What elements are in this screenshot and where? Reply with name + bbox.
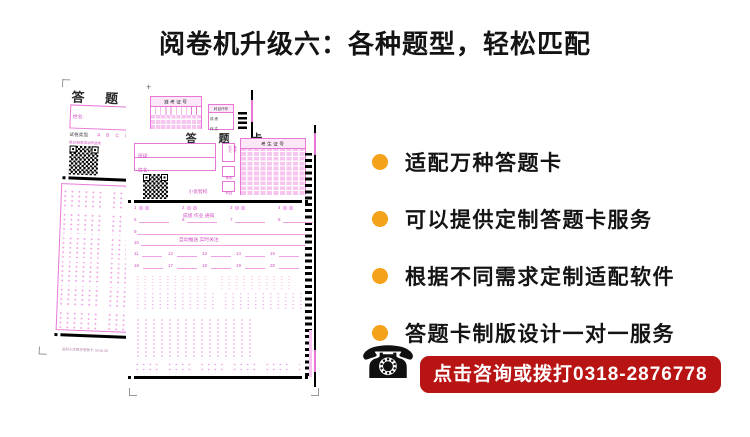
answer-bubble — [145, 206, 149, 210]
answer-blank — [137, 229, 306, 235]
question-number: 3 — [230, 206, 233, 211]
feature-label: 可以提供定制答题卡服务 — [405, 204, 653, 234]
question-number: 6 — [182, 218, 185, 223]
answer-blank — [279, 263, 299, 269]
answer-blank — [245, 263, 265, 269]
back-name-field: 姓名: — [69, 104, 132, 130]
bubble-block-51-60 — [134, 362, 300, 374]
crop-mark-icon — [39, 346, 47, 354]
question-number: 11 — [134, 252, 139, 257]
front-qr-caption: 小优智校 成绩 作业 通知 自动推送 实时关注 — [171, 177, 226, 249]
answer-bubble — [289, 206, 293, 210]
feature-label: 答题卡制版设计一对一服务 — [405, 318, 675, 348]
question-number: 9 — [134, 230, 137, 235]
question-number: 20 — [270, 264, 275, 269]
feature-item: 根据不同需求定制适配软件 — [372, 261, 675, 291]
class-label: 班级: — [138, 152, 149, 159]
bullet-icon — [372, 268, 388, 284]
bubble-block-36-40 — [222, 292, 304, 310]
answer-blank — [141, 240, 306, 246]
crop-mark-icon — [129, 388, 137, 396]
separator-bar — [134, 376, 302, 379]
question-number: 5 — [134, 218, 137, 223]
page-title: 阅卷机升级六：各种题型，轻松匹配 — [0, 24, 750, 61]
answer-blank — [235, 217, 265, 223]
answer-blank — [283, 217, 313, 223]
candidate-number-cells — [241, 149, 305, 195]
crop-mark-icon — [311, 388, 319, 396]
name-label: 姓名: — [138, 166, 149, 173]
answer-blank — [211, 263, 231, 269]
bubble-block-26-30 — [218, 275, 296, 290]
barcode-box: 条码 — [222, 166, 235, 177]
answer-blank — [211, 251, 231, 257]
answer-blank — [177, 251, 197, 257]
question-row-1-4: 1 2 3 4 — [134, 205, 326, 211]
promo-banner: 阅卷机升级六：各种题型，轻松匹配 答 题 卡 姓名: 试卷类型 A B C D … — [0, 0, 750, 437]
question-number: 13 — [202, 252, 207, 257]
registration-mark-icon: + — [146, 82, 151, 92]
question-row-11-15: 11 12 13 14 15 — [134, 251, 304, 257]
question-number: 10 — [134, 241, 139, 246]
bubble-block-31-35 — [134, 292, 214, 310]
student-info-box: 班级: 姓名: — [134, 143, 216, 171]
question-number: 12 — [168, 252, 173, 257]
back-name-label: 姓名: — [73, 112, 84, 120]
answer-blank — [187, 217, 217, 223]
candidate-number-grid: 考 生 证 号 — [240, 138, 306, 195]
question-number: 7 — [230, 218, 233, 223]
answer-blank — [177, 263, 197, 269]
subject-code-box: 科目代号 成 绩 作 文 — [208, 104, 234, 130]
question-row-16-20: 16 17 18 19 20 — [134, 263, 304, 269]
bullet-icon — [372, 211, 388, 227]
bubble-block-41-50 — [134, 318, 254, 358]
qr-caption-line1: 小优智校 — [189, 189, 208, 196]
question-row-9: 9 — [134, 229, 306, 235]
candidate-number-header: 考 生 证 号 — [261, 140, 284, 147]
separator-bar — [134, 200, 302, 203]
question-number: 19 — [236, 264, 241, 269]
edge-line — [314, 125, 316, 387]
subject-row-1: 成 绩 — [210, 116, 218, 121]
feature-item: 适配万种答题卡 — [372, 147, 675, 177]
pink-edge-bar — [309, 330, 312, 377]
answer-bubble — [283, 206, 287, 210]
feature-list: 适配万种答题卡 可以提供定制答题卡服务 根据不同需求定制适配软件 答题卡制版设计… — [372, 147, 675, 348]
question-row-5-8: 5 6 7 8 — [134, 217, 326, 223]
question-number: 15 — [270, 252, 275, 257]
answer-sheet-front: + 准 考 证 号 科目代号 成 绩 作 文 答 题 卡 班级: 姓名: 缺考标… — [126, 80, 322, 402]
feature-item: 答题卡制版设计一对一服务 — [372, 318, 675, 348]
contact-cta-button[interactable]: 点击咨询或拨打0318-2876778 — [420, 356, 721, 393]
feature-item: 可以提供定制答题卡服务 — [372, 204, 675, 234]
answer-blank — [139, 217, 169, 223]
question-number: 1 — [134, 206, 137, 211]
telephone-icon[interactable]: ☎ — [360, 340, 416, 385]
answer-bubble — [193, 206, 197, 210]
exam-number-grid: 准 考 证 号 — [150, 96, 202, 129]
answer-blank — [279, 251, 299, 257]
answer-blank — [143, 263, 163, 269]
answer-bubble — [235, 206, 239, 210]
question-number: 4 — [278, 206, 281, 211]
exam-number-empty-row — [151, 107, 201, 115]
answer-blank — [142, 251, 162, 257]
question-number: 17 — [168, 264, 173, 269]
question-number: 8 — [278, 218, 281, 223]
absent-mark-box: 缺考标记 — [222, 143, 235, 162]
question-number: 14 — [236, 252, 241, 257]
answer-bubble — [187, 206, 191, 210]
feature-label: 根据不同需求定制适配软件 — [405, 261, 675, 291]
exam-number-filled-cells — [151, 115, 201, 129]
exam-number-header: 准 考 证 号 — [164, 98, 187, 105]
bullet-icon — [372, 154, 388, 170]
qr-code-icon — [143, 174, 168, 199]
feature-label: 适配万种答题卡 — [405, 147, 563, 177]
answer-bubble — [241, 206, 245, 210]
question-row-10: 10 — [134, 240, 306, 246]
question-number: 16 — [134, 264, 139, 269]
timing-marks-block-icon — [238, 112, 247, 129]
question-number: 18 — [202, 264, 207, 269]
bubble-block-21-25 — [134, 275, 210, 290]
answer-bubble — [139, 206, 143, 210]
question-number: 2 — [182, 206, 185, 211]
subject-code-header: 科目代号 — [214, 106, 228, 111]
answer-blank — [245, 251, 265, 257]
